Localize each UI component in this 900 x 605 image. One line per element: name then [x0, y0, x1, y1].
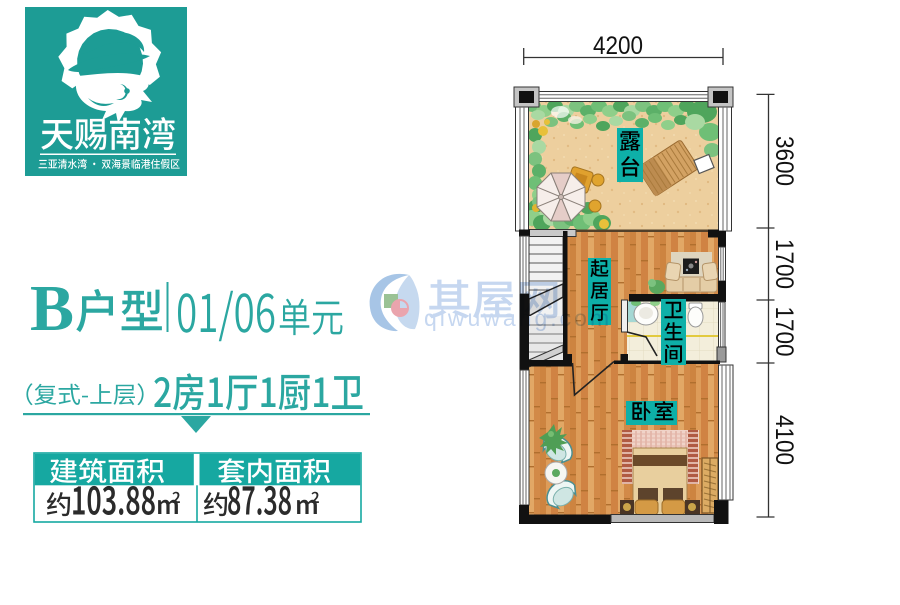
svg-text:4100: 4100: [770, 415, 798, 465]
svg-text:qiwuwang.com: qiwuwang.com: [424, 305, 612, 331]
svg-text:3600: 3600: [770, 136, 798, 186]
svg-text:1700: 1700: [770, 307, 798, 357]
svg-text:1700: 1700: [770, 239, 798, 289]
svg-text:4200: 4200: [593, 32, 643, 60]
svg-text:B: B: [30, 272, 74, 345]
